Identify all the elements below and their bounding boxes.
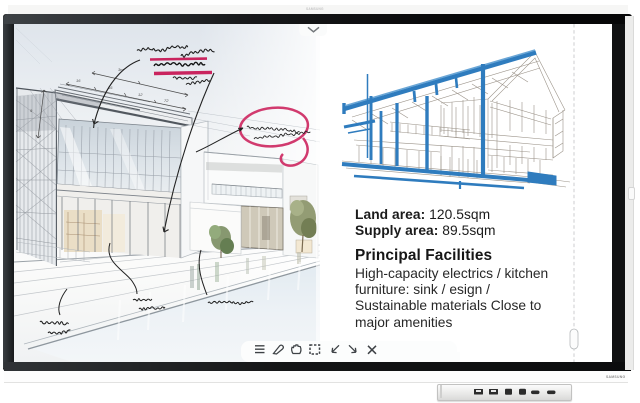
svg-text:72: 72 [164,98,169,103]
svg-text:16: 16 [76,78,81,83]
svg-text:12: 12 [138,92,143,97]
